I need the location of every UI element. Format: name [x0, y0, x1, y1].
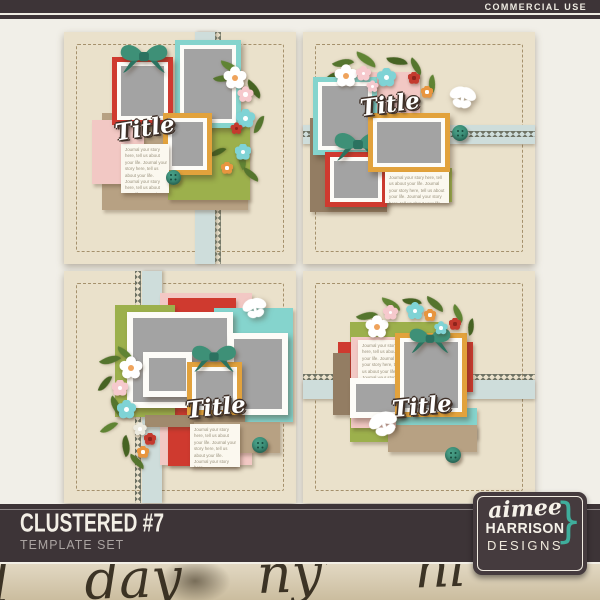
journal-card: Journal your story here, tell us about y…: [121, 144, 169, 193]
bow-icon: [115, 41, 173, 75]
photo-frame-orange: [368, 113, 450, 172]
journal-card: Journal your story here, tell us about y…: [385, 172, 449, 203]
flower-icon: [119, 356, 143, 380]
flower-icon: [112, 380, 128, 396]
butterfly-icon: [442, 80, 483, 118]
journal-card: Journal your story here, tell us about y…: [190, 424, 240, 467]
product-ad-page: COMMERCIAL USE Journal your story here, …: [0, 0, 600, 600]
ink-blot: [158, 564, 232, 600]
brand-name: HARRISON: [484, 521, 567, 537]
template-4: Journal your story here, tell us about y…: [303, 271, 535, 503]
flower-icon: [144, 433, 156, 445]
flower-icon: [334, 64, 358, 88]
flower-icon: [221, 162, 233, 174]
layer-paper-brown: [333, 353, 350, 415]
flower-icon: [408, 72, 420, 84]
flower-icon: [449, 318, 461, 330]
commercial-use-badge: COMMERCIAL USE: [485, 2, 587, 12]
product-title: CLUSTERED #7: [20, 509, 164, 539]
template-3: Title Journal your story here, tell us a…: [64, 271, 296, 503]
template-1: Journal your story here, tell us about y…: [64, 32, 296, 264]
button-embellishment: [166, 170, 181, 185]
flower-icon: [237, 86, 254, 103]
button-embellishment: [445, 447, 461, 463]
photo-frame-white: [143, 352, 192, 397]
flower-icon: [406, 302, 424, 320]
product-subtitle: TEMPLATE SET: [20, 537, 124, 552]
button-embellishment: [452, 125, 468, 141]
flower-icon: [424, 309, 436, 321]
bow-icon: [188, 342, 240, 374]
button-embellishment: [252, 437, 268, 453]
flower-icon: [235, 144, 251, 160]
top-bar: COMMERCIAL USE: [0, 0, 600, 19]
flower-icon: [356, 66, 371, 81]
flower-icon: [434, 321, 448, 335]
flower-icon: [383, 305, 398, 320]
flower-icon: [137, 446, 149, 458]
handwriting-text: l day ny’ nl: [0, 564, 468, 600]
flower-icon: [117, 400, 136, 419]
flower-icon: [366, 80, 379, 93]
brace-icon: }: [555, 495, 582, 547]
flower-icon: [421, 86, 433, 98]
flower-icon: [377, 68, 396, 87]
template-2: Journal your story here, tell us about y…: [303, 32, 535, 264]
flower-icon: [230, 122, 243, 135]
brand-logo: aimee HARRISON DESIGNS }: [473, 492, 587, 575]
